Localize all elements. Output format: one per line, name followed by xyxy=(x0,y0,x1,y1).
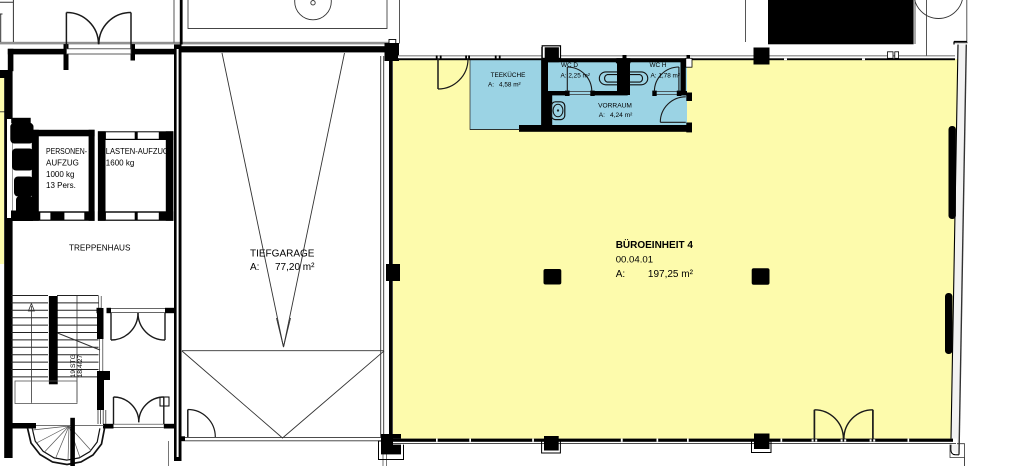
svg-text:A:: A: xyxy=(599,112,605,119)
svg-text:1600 kg: 1600 kg xyxy=(106,158,134,167)
svg-text:WC D: WC D xyxy=(561,62,578,69)
svg-text:A: 2,25 m²: A: 2,25 m² xyxy=(561,72,590,79)
svg-text:TEEKÜCHE: TEEKÜCHE xyxy=(491,71,526,79)
svg-text:4,58 m²: 4,58 m² xyxy=(499,82,521,89)
svg-text:77,20 m²: 77,20 m² xyxy=(275,262,315,273)
svg-text:LASTEN-AUFZUG: LASTEN-AUFZUG xyxy=(106,147,169,156)
svg-text:TREPPENHAUS: TREPPENHAUS xyxy=(69,244,131,253)
svg-text:13 Pers.: 13 Pers. xyxy=(46,181,76,190)
svg-text:TIEFGARAGE: TIEFGARAGE xyxy=(250,249,315,260)
svg-text:A:: A: xyxy=(250,262,259,273)
svg-text:BÜROEINHEIT 4: BÜROEINHEIT 4 xyxy=(616,238,694,251)
svg-text:PERSONEN-: PERSONEN- xyxy=(46,147,87,156)
svg-text:A: 1,78 m²: A: 1,78 m² xyxy=(651,72,680,79)
svg-text:VORRAUM: VORRAUM xyxy=(598,102,632,109)
svg-text:WC H: WC H xyxy=(650,62,667,69)
svg-text:19 STG: 19 STG xyxy=(70,354,77,377)
svg-text:A:: A: xyxy=(488,82,494,89)
svg-text:AUFZUG: AUFZUG xyxy=(46,158,79,167)
svg-text:A:: A: xyxy=(616,269,625,280)
svg-text:1000 kg: 1000 kg xyxy=(46,170,74,179)
svg-text:4,24 m²: 4,24 m² xyxy=(610,112,633,119)
svg-text:00.04.01: 00.04.01 xyxy=(616,255,653,266)
svg-text:18.4/27: 18.4/27 xyxy=(77,355,84,378)
svg-text:197,25 m²: 197,25 m² xyxy=(648,269,694,280)
